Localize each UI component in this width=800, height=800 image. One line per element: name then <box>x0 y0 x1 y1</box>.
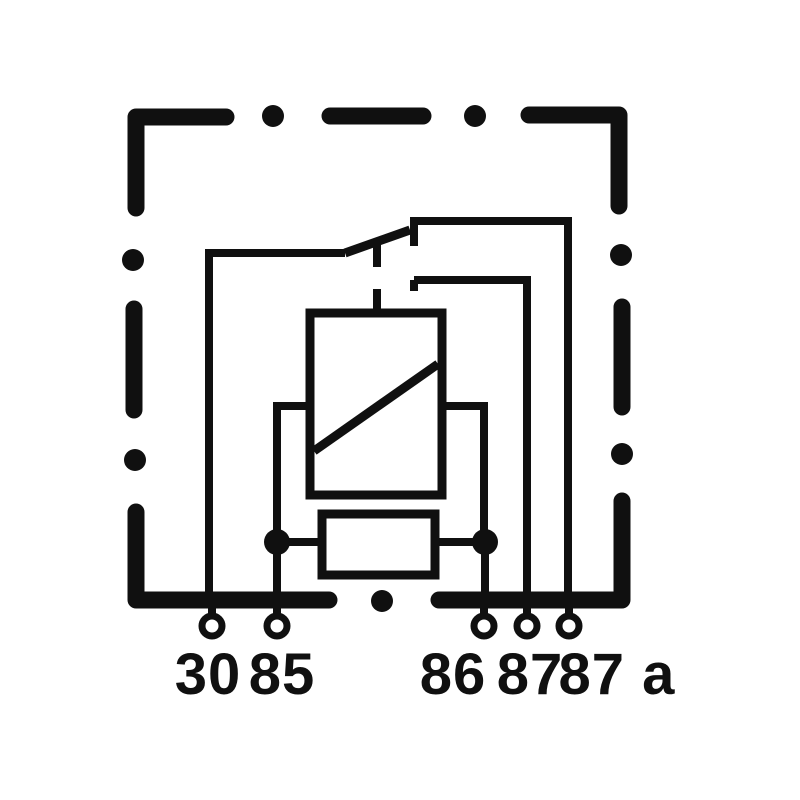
border-dot-left-1 <box>122 249 144 271</box>
border-corner-top-left <box>136 117 226 208</box>
bracket-coil-to-86 <box>440 406 484 538</box>
border-corner-top-right <box>529 115 619 206</box>
terminal-label-87a: 87 a <box>559 642 676 707</box>
terminal-label-85: 85 <box>249 642 316 707</box>
relay-circuit-diagram: 30 85 86 87 87 a <box>0 0 800 800</box>
border-dot-left-2 <box>124 449 146 471</box>
terminal-circle-86 <box>474 616 494 636</box>
terminal-label-86: 86 <box>420 642 487 707</box>
border-dot-bottom <box>371 590 393 612</box>
terminal-label-30: 30 <box>175 642 242 707</box>
terminal-circle-85 <box>267 616 287 636</box>
border-dot-right-1 <box>610 244 632 266</box>
border-dot-top-1 <box>262 105 284 127</box>
resistor-box <box>322 514 435 575</box>
relay-diagram-page: 30 85 86 87 87 a <box>0 0 800 800</box>
terminal-circle-30 <box>202 616 222 636</box>
border-dot-top-2 <box>464 105 486 127</box>
terminal-circle-87 <box>517 616 537 636</box>
terminal-label-87: 87 <box>497 642 564 707</box>
border-corner-bottom-left-and-terminal-bus-left <box>136 512 329 600</box>
terminal-circle-87a <box>559 616 579 636</box>
border-dot-right-2 <box>611 443 633 465</box>
